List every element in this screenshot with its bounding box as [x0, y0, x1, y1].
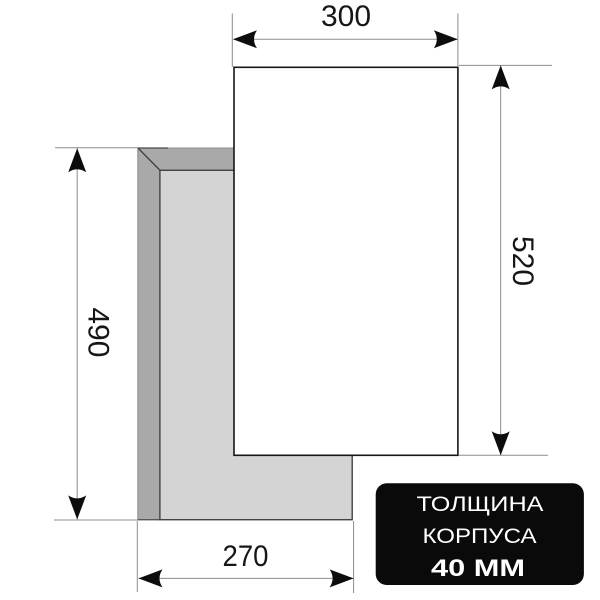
svg-text:490: 490	[82, 307, 115, 357]
svg-text:40 ММ: 40 ММ	[431, 555, 525, 582]
svg-text:520: 520	[506, 236, 539, 286]
svg-text:270: 270	[223, 540, 269, 573]
svg-text:ТОЛЩИНА: ТОЛЩИНА	[417, 492, 545, 516]
svg-text:300: 300	[321, 0, 371, 33]
svg-text:КОРПУСА: КОРПУСА	[423, 524, 538, 548]
